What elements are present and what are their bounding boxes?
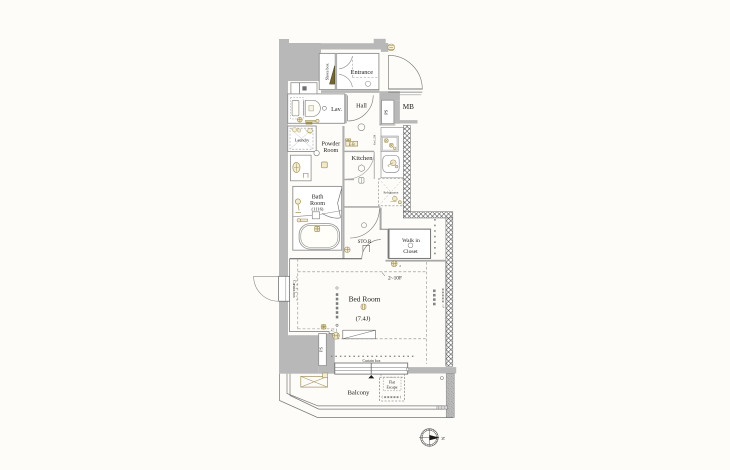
svg-text:Escape: Escape xyxy=(386,385,397,389)
svg-text:Hall: Hall xyxy=(356,102,367,109)
svg-text:Curtain box: Curtain box xyxy=(362,359,380,363)
svg-text:2: 2 xyxy=(399,264,401,268)
svg-text:Closet: Closet xyxy=(403,249,418,255)
svg-text:(1116): (1116) xyxy=(312,207,324,212)
svg-text:Kitchen: Kitchen xyxy=(351,155,373,162)
svg-text:Powder: Powder xyxy=(321,141,340,147)
svg-text:MB: MB xyxy=(403,103,414,111)
svg-text:Entrance: Entrance xyxy=(351,69,374,76)
svg-text:RwL2M: RwL2M xyxy=(372,134,376,145)
svg-text:Curtain box: Curtain box xyxy=(292,280,296,298)
svg-text:Laundry: Laundry xyxy=(295,138,310,143)
svg-text:PS: PS xyxy=(319,347,324,352)
svg-text:Bath: Bath xyxy=(312,194,324,200)
svg-text:E·B: E·B xyxy=(349,142,355,146)
svg-text:2~10F: 2~10F xyxy=(388,275,402,281)
svg-text:Flat: Flat xyxy=(389,381,396,385)
svg-text:Walk in: Walk in xyxy=(402,238,420,244)
svg-text:Refrigerator: Refrigerator xyxy=(383,190,398,194)
svg-text:Balcony: Balcony xyxy=(348,390,371,397)
svg-text:Bed Room: Bed Room xyxy=(349,295,381,304)
svg-text:PS: PS xyxy=(384,109,389,115)
svg-text:(7.4J): (7.4J) xyxy=(356,316,371,323)
svg-text:Room: Room xyxy=(323,148,338,154)
svg-text:Shoes box: Shoes box xyxy=(325,63,330,80)
svg-text:STO.R: STO.R xyxy=(358,240,372,245)
svg-text:Lav.: Lav. xyxy=(331,106,342,113)
svg-text:AC: AC xyxy=(331,329,335,332)
